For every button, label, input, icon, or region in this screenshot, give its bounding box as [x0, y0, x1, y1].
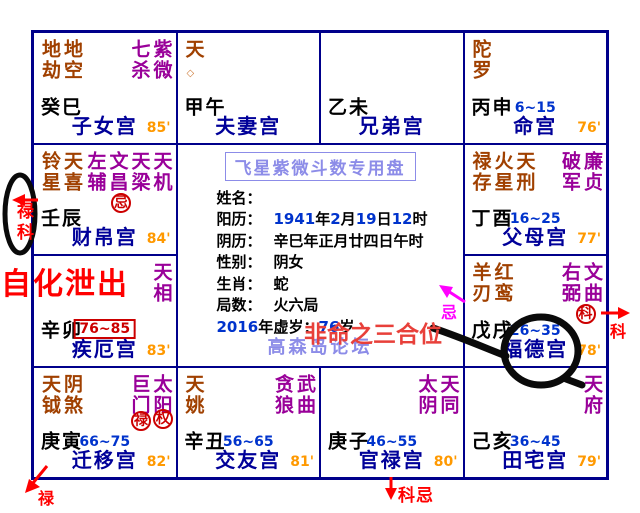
- palace-score: 83': [147, 343, 171, 359]
- hua-ke-badge: 科: [576, 304, 596, 324]
- field-value-lunar: 辛巳年正月廿四日午时: [274, 231, 424, 253]
- hua-lu-badge: 禄: [131, 411, 151, 431]
- palace-score: 78': [577, 343, 601, 359]
- palace-zinv: 地劫地空 七杀紫微 癸巳 子女宫 85': [33, 32, 177, 144]
- palace-name: 兄弟宫: [321, 110, 463, 139]
- palace-score: 77': [577, 231, 601, 247]
- major-stars: 破军廉贞: [559, 151, 603, 193]
- diamond-icon: ◇: [187, 63, 205, 85]
- palace-tianzhai: 天府 己亥 36~45 田宅宫 79': [464, 367, 608, 479]
- field-label-lunar: 阴历：: [217, 231, 274, 253]
- forum-watermark: 高森岛论坛: [178, 333, 463, 359]
- palace-ming: 陀罗 丙申 6~15 命宫 76': [464, 32, 608, 144]
- arrow-right-head-icon: [618, 307, 630, 319]
- arrow-left-head-icon: [12, 194, 25, 206]
- field-label-solar: 阳历：: [217, 209, 274, 231]
- palace-score: 76': [577, 120, 601, 136]
- field-value-zodiac: 蛇: [274, 274, 289, 296]
- annotation-lu: 禄: [38, 485, 54, 509]
- minor-stars: 铃星天喜: [39, 151, 83, 193]
- palace-fumu: 禄存火星天刑 破军廉贞 丁酉 16~25 父母宫 77': [464, 144, 608, 256]
- birth-info: 姓名： 阳历：1941年2月19日12时 阴历：辛巳年正月廿四日午时 性别：阴女…: [217, 188, 463, 339]
- chart-title: 飞星紫微斗数专用盘: [225, 152, 416, 181]
- major-stars: 左辅文昌天梁天机: [85, 151, 173, 193]
- palace-score: 82': [147, 454, 171, 470]
- palace-jiaoyou: 天姚 贪狼武曲 辛丑 56~65 交友宫 81': [177, 367, 321, 479]
- palace-fuqi: 天 ◇ 甲午 夫妻宫: [177, 32, 321, 144]
- palace-name: 夫妻宫: [178, 110, 320, 139]
- minor-stars: 禄存火星天刑: [470, 151, 536, 193]
- major-stars: 七杀紫微: [129, 39, 173, 81]
- minor-stars: 天钺阴煞: [39, 374, 83, 416]
- palace-jie: 天相 辛卯 76~85 疾厄宫 83': [33, 255, 177, 367]
- field-label-zodiac: 生肖：: [217, 274, 274, 296]
- minor-stars: 地劫地空: [39, 39, 83, 81]
- major-stars: 太阴天同: [416, 374, 460, 416]
- palace-grid: 地劫地空 七杀紫微 癸巳 子女宫 85' 天 ◇ 甲午 夫妻宫 乙未 兄弟宫 陀…: [31, 30, 609, 480]
- palace-fude: 羊刃红鸾 右弼文曲 科 戊戌 26~35 福德宫 78': [464, 255, 608, 367]
- major-stars: 天相: [151, 262, 173, 304]
- palace-caibo: 铃星天喜 左辅文昌天梁天机 忌 壬辰 财帛宫 84': [33, 144, 177, 256]
- palace-xiongdi: 乙未 兄弟宫: [320, 32, 464, 144]
- field-label-gender: 性别：: [217, 252, 274, 274]
- minor-star-label: 天: [183, 39, 205, 60]
- minor-stars: 天姚: [183, 374, 205, 416]
- field-label-name: 姓名：: [217, 188, 274, 210]
- major-stars: 贪狼武曲: [272, 374, 316, 416]
- field-label-jushu: 局数：: [217, 295, 274, 317]
- palace-score: 79': [577, 454, 601, 470]
- palace-score: 81': [290, 454, 314, 470]
- major-stars: 天府: [581, 374, 603, 416]
- major-stars: 右弼文曲: [559, 262, 603, 304]
- annotation-ke: 科: [610, 318, 626, 342]
- info-panel: 飞星紫微斗数专用盘 姓名： 阳历：1941年2月19日12时 阴历：辛巳年正月廿…: [177, 144, 464, 367]
- arrow-downleft-head-icon: [25, 479, 40, 493]
- field-value-solar: 1941年2月19日12时: [274, 209, 428, 231]
- palace-score: 84': [147, 231, 171, 247]
- minor-stars: 羊刃红鸾: [470, 262, 514, 304]
- palace-qianyi: 天钺阴煞 巨门太阳 禄 权 庚寅 66~75 迁移宫 82': [33, 367, 177, 479]
- palace-score: 85': [147, 120, 171, 136]
- field-value-jushu: 火六局: [274, 295, 319, 317]
- arrow-down-head-icon: [385, 488, 397, 500]
- minor-stars: 天 ◇: [183, 39, 205, 81]
- field-value-gender: 阴女: [274, 252, 304, 274]
- minor-stars: 陀罗: [470, 39, 492, 81]
- palace-score: 80': [434, 454, 458, 470]
- palace-guanlu: 太阴天同 庚子 46~55 官禄宫 80': [320, 367, 464, 479]
- hua-quan-badge: 权: [153, 409, 173, 429]
- ziwei-chart: 地劫地空 七杀紫微 癸巳 子女宫 85' 天 ◇ 甲午 夫妻宫 乙未 兄弟宫 陀…: [0, 0, 640, 513]
- hua-ji-badge: 忌: [111, 193, 131, 213]
- annotation-ke-ji: 科忌: [398, 481, 434, 506]
